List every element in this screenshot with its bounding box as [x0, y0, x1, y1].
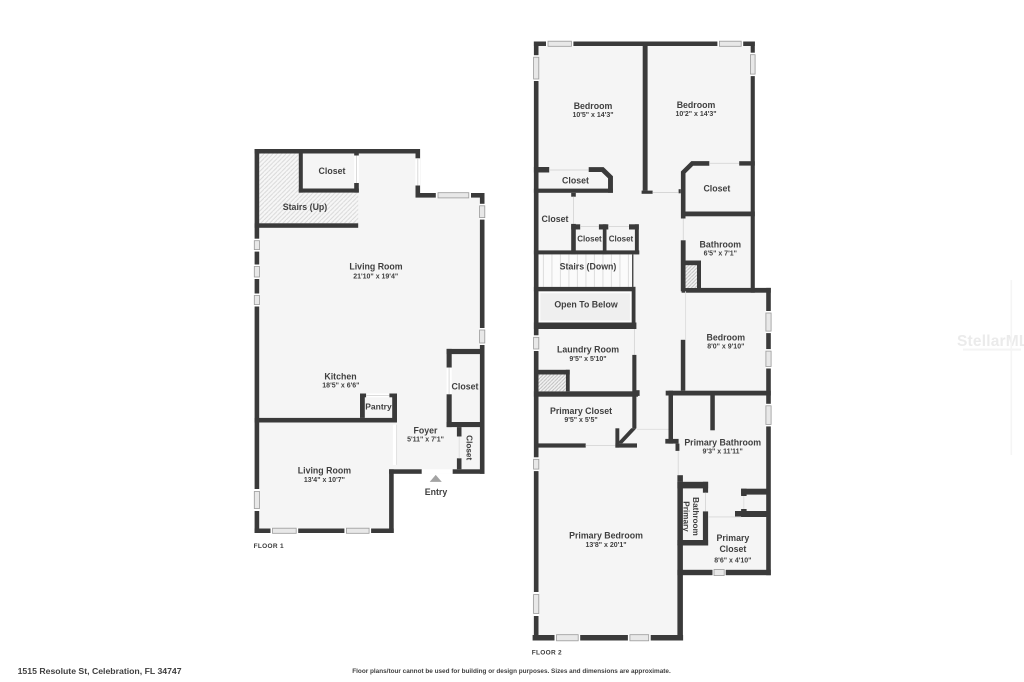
svg-text:13'4" x 10'7": 13'4" x 10'7" [304, 477, 345, 484]
svg-text:Closet: Closet [464, 435, 473, 460]
svg-text:8'6" x 4'10": 8'6" x 4'10" [714, 557, 751, 564]
svg-text:Entry: Entry [425, 487, 448, 497]
svg-text:21'10" x 19'4": 21'10" x 19'4" [353, 273, 398, 280]
svg-text:10'2" x 14'3": 10'2" x 14'3" [675, 111, 716, 118]
svg-text:Bedroom: Bedroom [706, 332, 745, 342]
svg-text:Primary Bathroom: Primary Bathroom [684, 438, 761, 448]
svg-text:18'5" x 6'6": 18'5" x 6'6" [322, 383, 359, 390]
svg-text:Open To Below: Open To Below [554, 299, 618, 309]
svg-text:Stairs (Down): Stairs (Down) [560, 262, 617, 272]
svg-text:Bedroom: Bedroom [677, 100, 716, 110]
svg-text:Primary: Primary [717, 533, 750, 543]
svg-text:Stairs (Up): Stairs (Up) [283, 202, 328, 212]
svg-text:Foyer: Foyer [414, 426, 439, 436]
svg-text:Closet: Closet [719, 544, 746, 554]
svg-text:13'8" x 20'1": 13'8" x 20'1" [585, 542, 626, 549]
svg-text:5'11" x 7'1": 5'11" x 7'1" [407, 437, 444, 444]
svg-text:Laundry Room: Laundry Room [557, 345, 619, 355]
svg-text:9'5" x 5'10": 9'5" x 5'10" [569, 356, 606, 363]
svg-text:Bathroom: Bathroom [691, 497, 700, 536]
svg-text:8'0" x 9'10": 8'0" x 9'10" [707, 343, 744, 350]
svg-text:Closet: Closet [609, 235, 634, 244]
svg-text:Pantry: Pantry [365, 402, 392, 412]
svg-text:Living Room: Living Room [349, 262, 402, 272]
svg-text:10'5" x 14'3": 10'5" x 14'3" [572, 112, 613, 119]
svg-text:9'5" x 5'5": 9'5" x 5'5" [564, 417, 597, 424]
svg-text:StellarMLS: StellarMLS [957, 333, 1024, 350]
svg-text:Closet: Closet [577, 235, 602, 244]
svg-text:9'3" x 11'11": 9'3" x 11'11" [703, 449, 743, 456]
svg-text:Primary Bedroom: Primary Bedroom [569, 531, 643, 541]
svg-text:Living Room: Living Room [298, 466, 351, 476]
svg-text:Closet: Closet [703, 184, 730, 194]
svg-text:Closet: Closet [319, 166, 346, 176]
svg-text:FLOOR 2: FLOOR 2 [532, 649, 562, 656]
svg-text:Bedroom: Bedroom [574, 101, 613, 111]
svg-text:Closet: Closet [452, 382, 479, 392]
svg-text:Floor plans/tour cannot be use: Floor plans/tour cannot be used for buil… [352, 668, 671, 675]
svg-text:Closet: Closet [542, 214, 569, 224]
svg-text:Bathroom: Bathroom [700, 240, 742, 250]
svg-text:Closet: Closet [562, 176, 589, 186]
svg-text:Primary: Primary [682, 501, 691, 532]
svg-text:FLOOR 1: FLOOR 1 [254, 543, 284, 550]
svg-text:1515 Resolute St, Celebration,: 1515 Resolute St, Celebration, FL 34747 [18, 666, 182, 676]
svg-text:Kitchen: Kitchen [324, 372, 356, 382]
svg-text:6'5" x 7'1": 6'5" x 7'1" [704, 251, 737, 258]
svg-text:Primary Closet: Primary Closet [550, 406, 612, 416]
